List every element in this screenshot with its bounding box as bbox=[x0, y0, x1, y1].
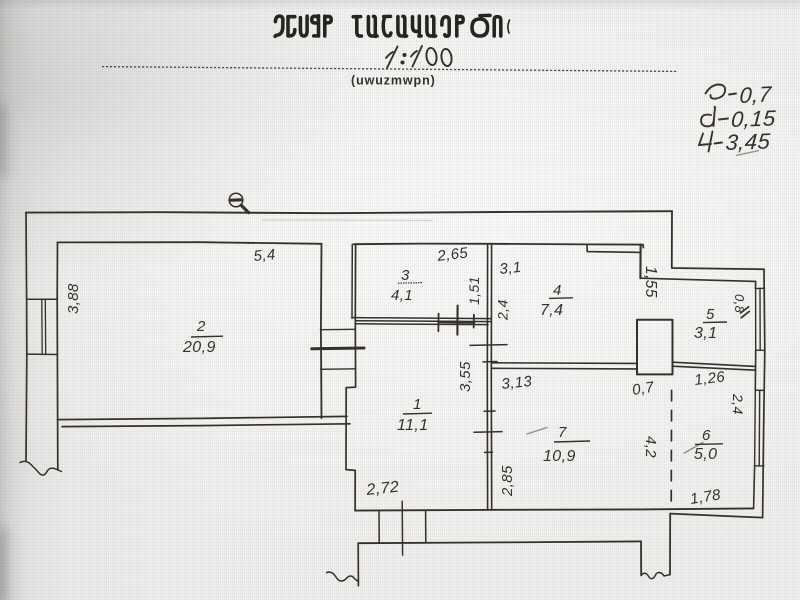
svg-text:20,9: 20,9 bbox=[182, 339, 216, 356]
svg-text:3,55: 3,55 bbox=[457, 361, 474, 392]
svg-text:5: 5 bbox=[706, 306, 715, 323]
svg-text:3,1: 3,1 bbox=[694, 325, 717, 342]
svg-text:7: 7 bbox=[558, 424, 567, 441]
svg-text:1,55: 1,55 bbox=[642, 266, 659, 298]
svg-text:11,1: 11,1 bbox=[397, 417, 429, 434]
svg-text:3,1: 3,1 bbox=[499, 259, 523, 278]
svg-text:0,8: 0,8 bbox=[732, 294, 747, 314]
svg-text:6: 6 bbox=[702, 427, 711, 444]
svg-text:2,4: 2,4 bbox=[495, 299, 511, 321]
svg-text:0,7: 0,7 bbox=[631, 379, 656, 399]
svg-text:2: 2 bbox=[196, 318, 206, 335]
svg-text:3,45: 3,45 bbox=[725, 129, 772, 155]
svg-text:0,7: 0,7 bbox=[739, 81, 773, 108]
svg-text:1,51: 1,51 bbox=[466, 276, 482, 305]
svg-text:7,4: 7,4 bbox=[540, 302, 563, 319]
svg-text:4: 4 bbox=[553, 282, 562, 299]
svg-text:1,26: 1,26 bbox=[693, 368, 726, 389]
svg-text:10,9: 10,9 bbox=[543, 448, 576, 465]
svg-text:4,2: 4,2 bbox=[642, 436, 659, 458]
svg-text:4,1: 4,1 bbox=[391, 287, 413, 304]
svg-text:5,4: 5,4 bbox=[253, 246, 276, 265]
svg-text:2,85: 2,85 bbox=[499, 465, 516, 497]
svg-text:1: 1 bbox=[413, 396, 422, 413]
svg-text:2,65: 2,65 bbox=[435, 244, 469, 265]
svg-text:3,13: 3,13 bbox=[501, 373, 534, 393]
svg-text:3: 3 bbox=[401, 267, 410, 284]
svg-text:5,0: 5,0 bbox=[694, 446, 717, 463]
svg-text:3,88: 3,88 bbox=[65, 283, 82, 314]
svg-text:2,72: 2,72 bbox=[365, 479, 400, 499]
svg-text:1,78: 1,78 bbox=[689, 486, 722, 508]
svg-text:(uwuzmwpn): (uwuzmwpn) bbox=[351, 74, 436, 88]
svg-text:2,4: 2,4 bbox=[730, 393, 746, 415]
